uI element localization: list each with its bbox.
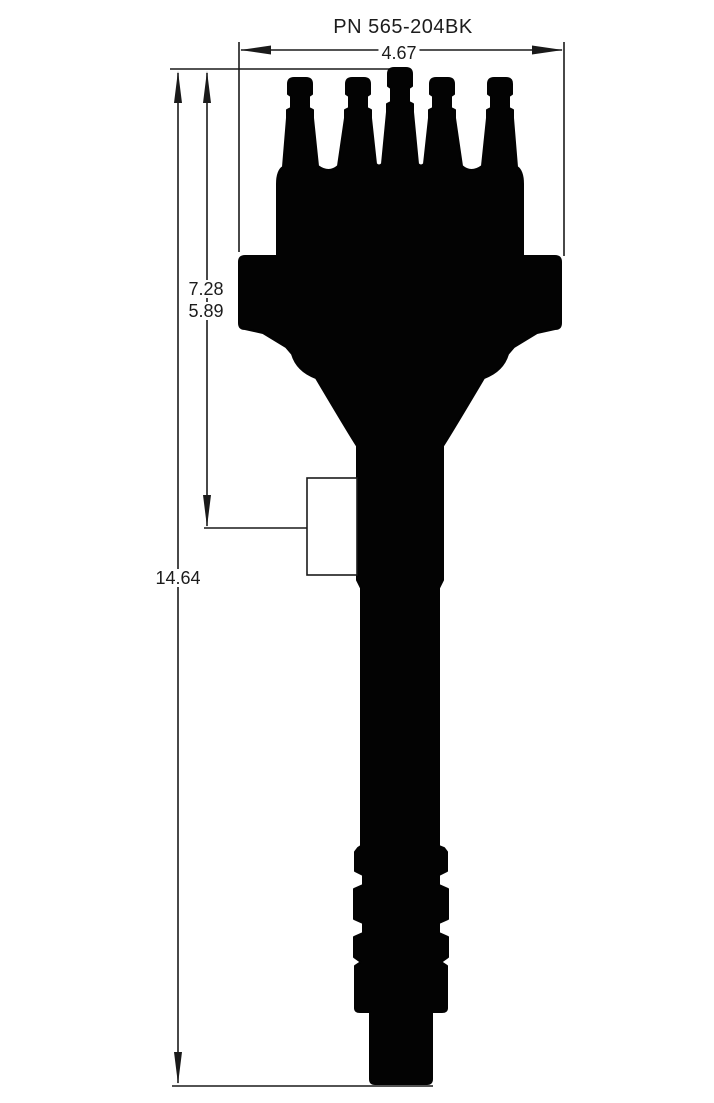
technical-drawing: PN 565-204BK 4.67 7.28 5.89 14.64 — [0, 0, 714, 1103]
clamp-arrow-down — [203, 495, 211, 527]
clamp-height-dimension-label: 5.89 — [185, 302, 226, 320]
distributor-shaft-shape — [357, 444, 443, 852]
distributor-silhouette — [239, 68, 561, 1084]
distributor-cap-shape — [239, 68, 561, 452]
upper-height-dimension-label: 7.28 — [185, 280, 226, 298]
drawing-canvas — [0, 0, 714, 1103]
distributor-gear-shape — [354, 846, 448, 1084]
overall-arrow-up — [174, 71, 182, 103]
clamp-arrow-up — [203, 71, 211, 103]
overall-arrow-down — [174, 1052, 182, 1084]
part-number-label: PN 565-204BK — [330, 17, 475, 37]
overall-height-dimension-label: 14.64 — [152, 569, 203, 587]
width-arrow-right — [532, 46, 563, 55]
hold-down-clamp-outline — [307, 478, 357, 575]
width-arrow-left — [240, 46, 271, 55]
width-dimension-label: 4.67 — [378, 44, 419, 62]
